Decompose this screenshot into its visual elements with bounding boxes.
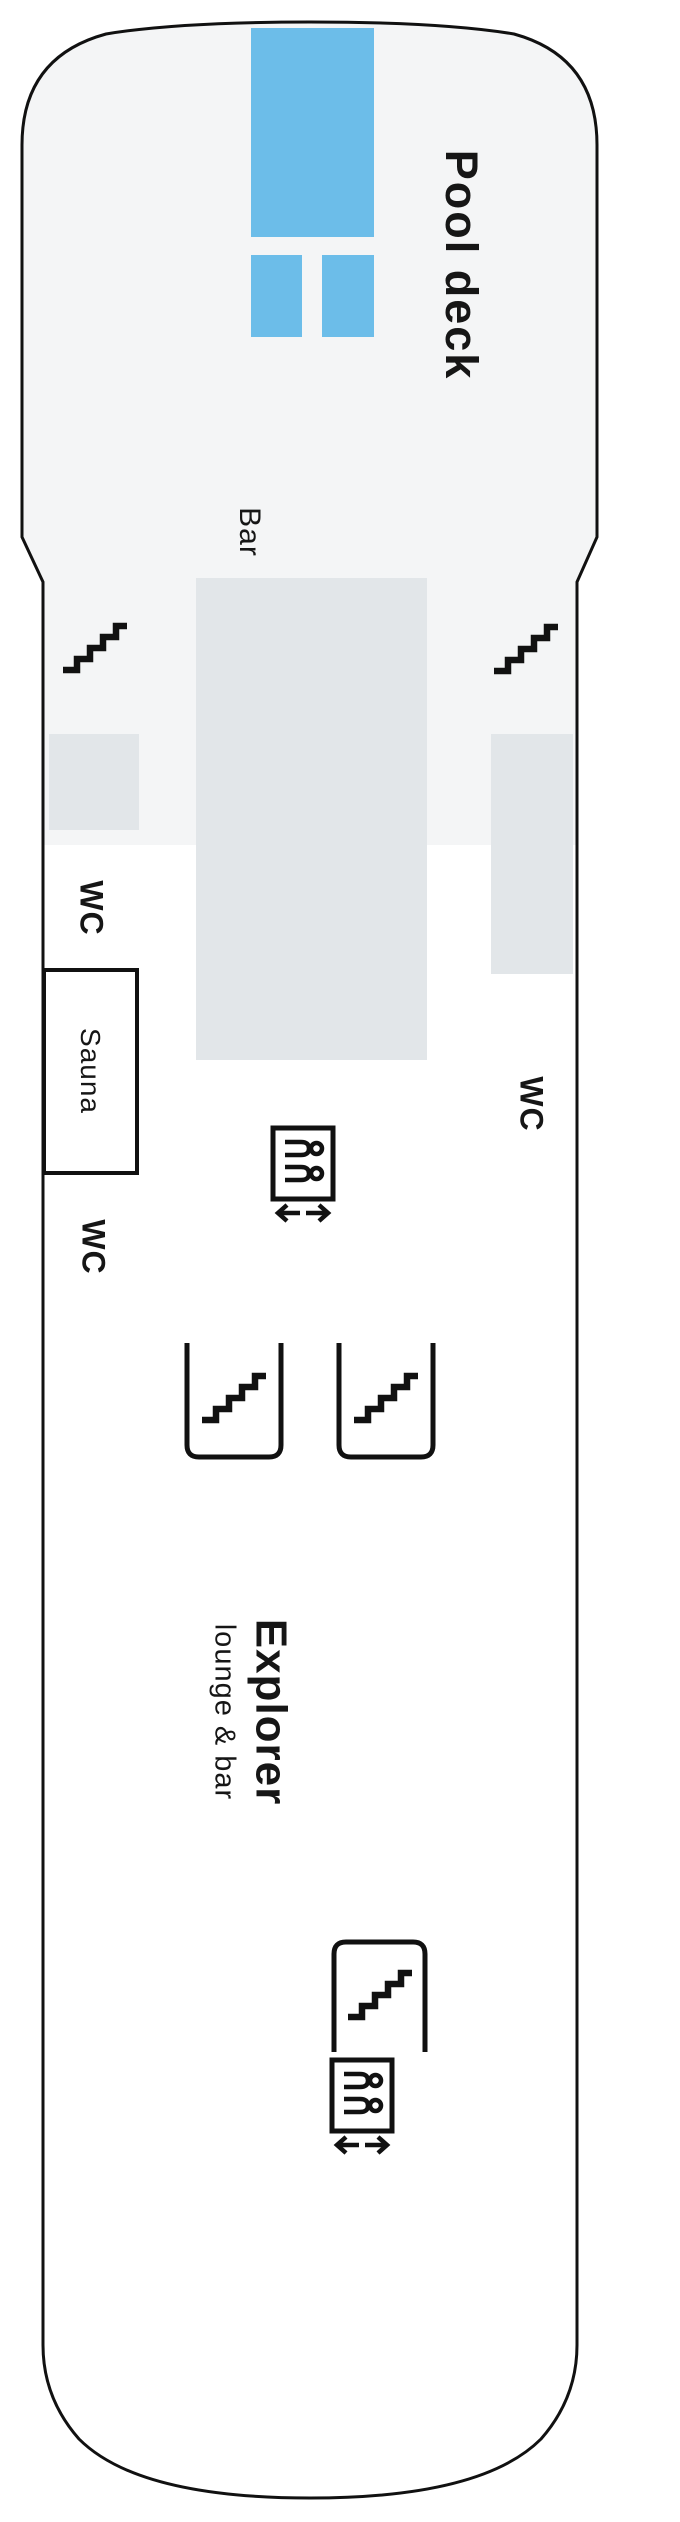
explorer-title: Explorer xyxy=(243,1619,300,1806)
ship-deck-plan: Pool deck Bar WC Sauna WC WC Explorer lo… xyxy=(0,0,680,2522)
pool-small-left xyxy=(251,255,302,337)
explorer-subtitle: lounge & bar xyxy=(206,1619,242,1806)
explorer-lounge-label: Explorer lounge & bar xyxy=(206,1619,299,1806)
bar-label: Bar xyxy=(232,507,266,557)
starboard-structure-block xyxy=(491,734,573,974)
port-structure-block xyxy=(49,734,139,830)
sauna-label: Sauna xyxy=(74,1028,106,1114)
pool-deck-label: Pool deck xyxy=(435,150,487,381)
wc-label-forward-port: WC xyxy=(73,880,110,935)
wc-label-starboard: WC xyxy=(513,1076,550,1131)
wc-label-mid-port: WC xyxy=(75,1219,112,1274)
pool-main xyxy=(251,28,374,237)
central-structure-block xyxy=(196,578,427,1060)
pool-small-right xyxy=(322,255,374,337)
